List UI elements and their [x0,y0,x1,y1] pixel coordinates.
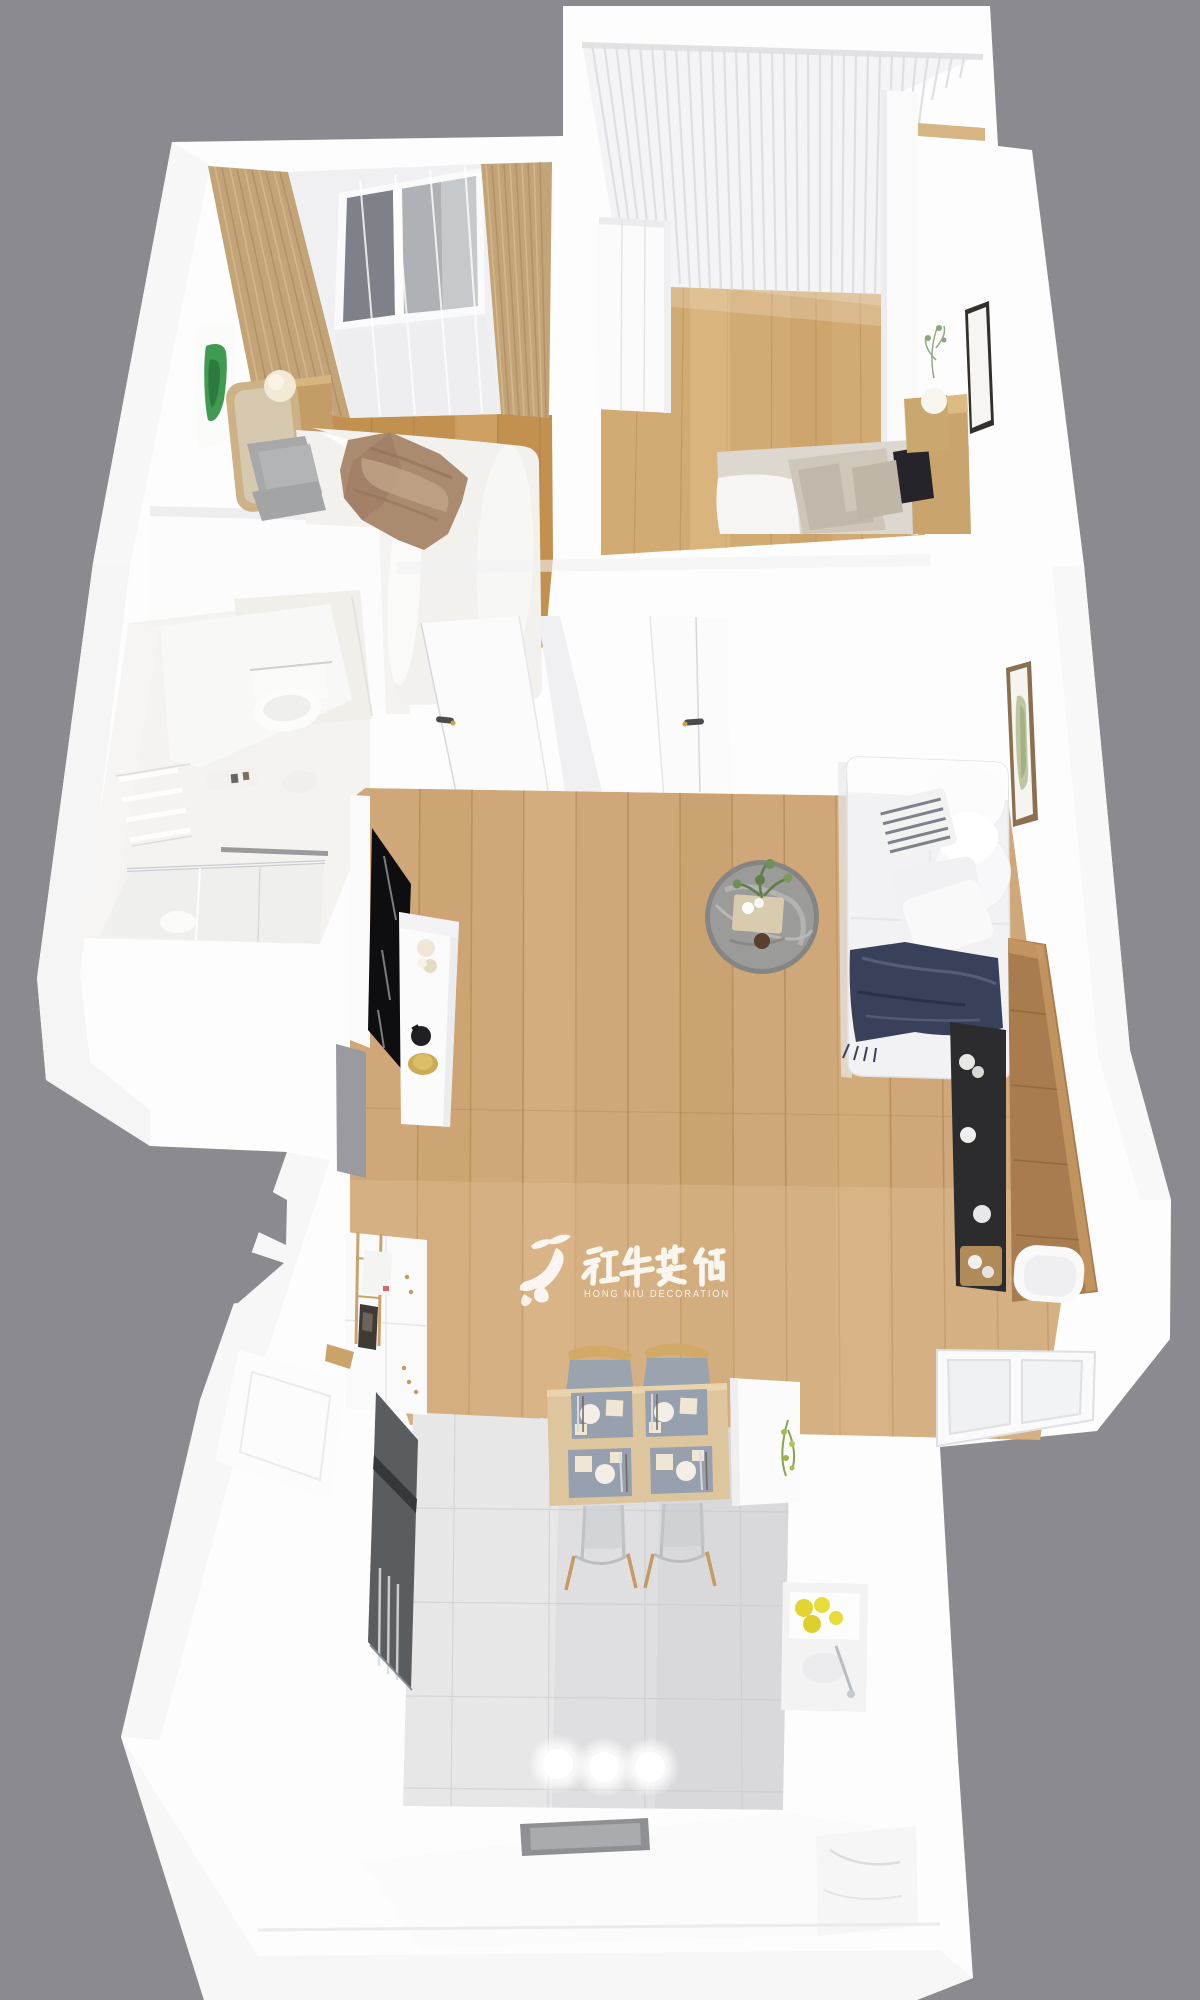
svg-text:HONG NIU DECORATION: HONG NIU DECORATION [584,1288,730,1300]
